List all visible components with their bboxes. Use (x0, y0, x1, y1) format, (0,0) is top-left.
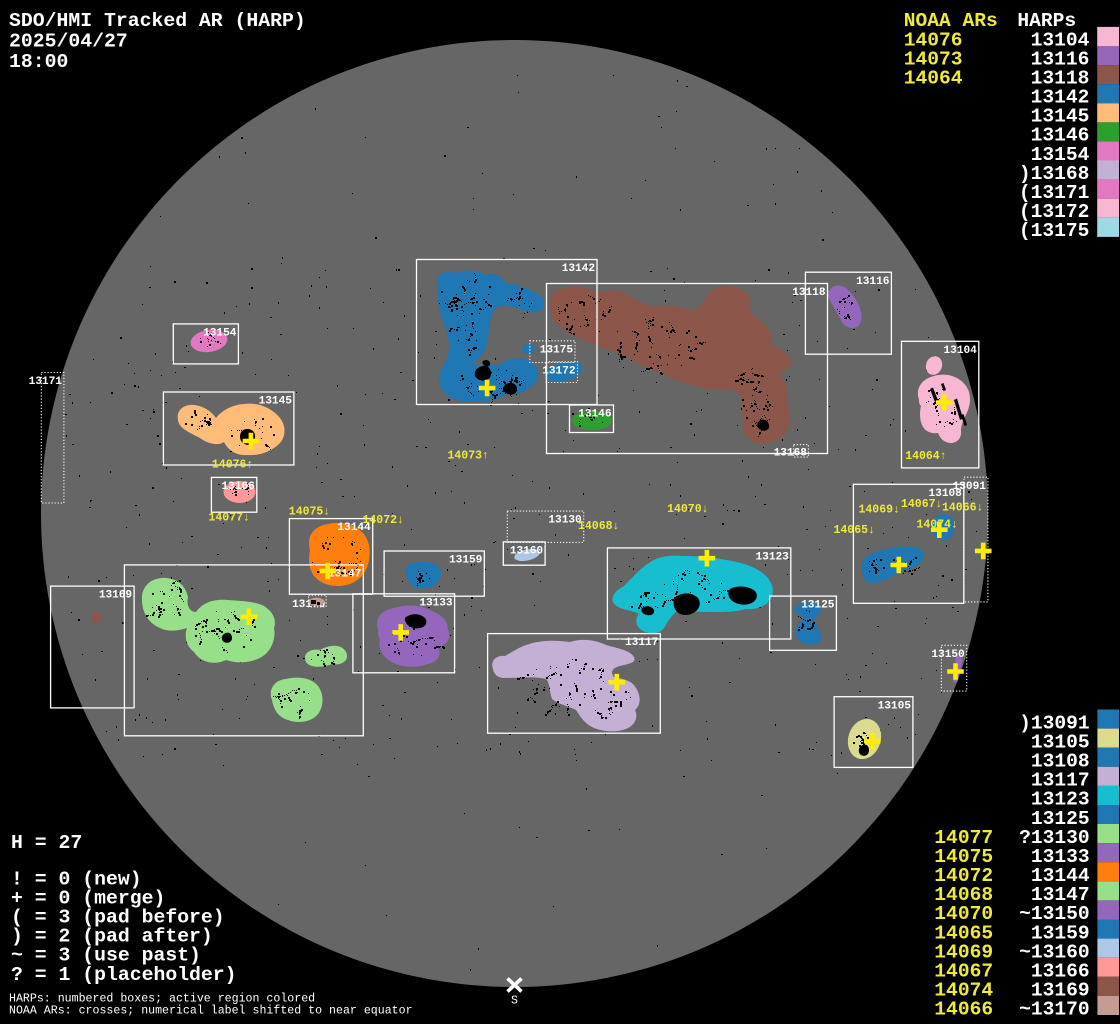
svg-text:14072↓: 14072↓ (363, 514, 404, 527)
svg-text:13171: 13171 (29, 376, 63, 388)
svg-text:13142: 13142 (562, 263, 596, 275)
svg-text:13116: 13116 (856, 276, 890, 288)
svg-text:14077↓: 14077↓ (209, 511, 250, 524)
svg-text:2025/04/27: 2025/04/27 (9, 31, 128, 53)
svg-text:13145: 13145 (259, 396, 293, 408)
svg-text:? = 1 (placeholder): ? = 1 (placeholder) (11, 964, 237, 986)
svg-text:13130: 13130 (548, 515, 582, 527)
svg-text:13154: 13154 (203, 328, 237, 340)
svg-text:13105: 13105 (878, 700, 912, 712)
svg-text:13169: 13169 (99, 590, 133, 602)
svg-text:14068↓: 14068↓ (578, 520, 619, 533)
svg-text:13168: 13168 (774, 448, 808, 460)
svg-text:14075↓: 14075↓ (289, 505, 330, 518)
svg-text:13104: 13104 (944, 345, 978, 357)
svg-text:~13170: ~13170 (1019, 999, 1090, 1021)
svg-text:14074↓: 14074↓ (917, 518, 958, 531)
svg-text:14073↑: 14073↑ (448, 449, 489, 462)
svg-text:13133: 13133 (419, 597, 453, 609)
svg-text:13123: 13123 (756, 552, 790, 564)
svg-text:14076↑: 14076↑ (212, 459, 253, 472)
svg-text:S: S (511, 995, 518, 1008)
svg-text:13125: 13125 (801, 600, 835, 612)
svg-text:14064↑: 14064↑ (905, 450, 946, 463)
svg-text:(13175: (13175 (1019, 220, 1090, 242)
svg-text:14066↓: 14066↓ (942, 501, 983, 514)
svg-text:14065↓: 14065↓ (834, 524, 875, 537)
svg-text:NOAA ARs: crosses; numerical l: NOAA ARs: crosses; numerical label shift… (9, 1004, 413, 1017)
svg-text:13118: 13118 (792, 287, 826, 299)
svg-text:13172: 13172 (542, 365, 576, 377)
svg-text:13146: 13146 (578, 409, 612, 421)
svg-text:13159: 13159 (449, 555, 483, 567)
svg-text:14069↓: 14069↓ (859, 504, 900, 517)
svg-text:14064: 14064 (904, 68, 963, 90)
svg-text:13091: 13091 (953, 481, 987, 493)
svg-text:H = 27: H = 27 (11, 832, 82, 854)
svg-text:13150: 13150 (931, 649, 965, 661)
svg-text:13175: 13175 (540, 344, 574, 356)
svg-text:13166: 13166 (222, 481, 256, 493)
svg-text:13160: 13160 (510, 546, 544, 558)
svg-text:14067↓: 14067↓ (901, 498, 942, 511)
svg-text:18:00: 18:00 (9, 51, 68, 73)
svg-text:SDO/HMI Tracked AR (HARP): SDO/HMI Tracked AR (HARP) (9, 10, 306, 32)
svg-text:14070↓: 14070↓ (667, 503, 708, 516)
svg-text:14066: 14066 (934, 999, 993, 1021)
